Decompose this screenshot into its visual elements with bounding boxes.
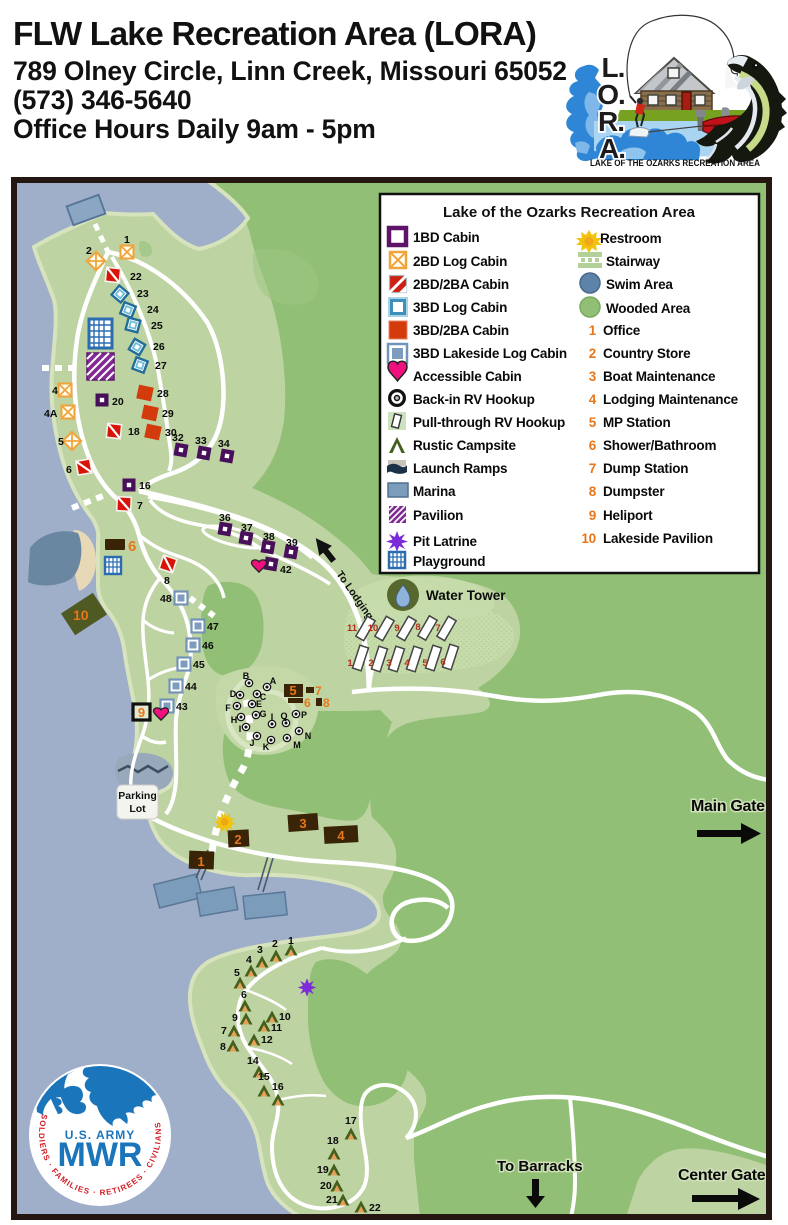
svg-text:8: 8 [220, 1041, 226, 1053]
svg-text:Pavilion: Pavilion [413, 508, 463, 523]
svg-text:2BD Log Cabin: 2BD Log Cabin [413, 254, 507, 269]
svg-text:Office: Office [603, 323, 641, 338]
svg-text:Pit Latrine: Pit Latrine [413, 534, 478, 549]
svg-text:19: 19 [317, 1164, 329, 1176]
svg-text:18: 18 [128, 426, 140, 438]
svg-text:7: 7 [435, 623, 440, 634]
svg-text:3BD Lakeside Log Cabin: 3BD Lakeside Log Cabin [413, 346, 567, 361]
svg-text:Lake of the Ozarks Recreation: Lake of the Ozarks Recreation Area [443, 204, 696, 221]
svg-text:3BD Log Cabin: 3BD Log Cabin [413, 300, 507, 315]
svg-text:1: 1 [197, 854, 204, 869]
svg-text:6: 6 [304, 696, 311, 710]
svg-text:I: I [271, 712, 274, 722]
svg-text:N: N [305, 731, 312, 741]
svg-text:3: 3 [589, 369, 597, 384]
svg-text:6: 6 [589, 438, 597, 453]
svg-text:Rustic Campsite: Rustic Campsite [413, 438, 516, 453]
svg-text:28: 28 [157, 388, 169, 400]
svg-text:1BD Cabin: 1BD Cabin [413, 230, 479, 245]
svg-text:H: H [231, 715, 238, 725]
svg-text:45: 45 [193, 659, 205, 671]
svg-text:10: 10 [73, 607, 89, 623]
svg-text:E: E [256, 699, 262, 709]
svg-text:K: K [263, 742, 270, 752]
svg-text:7: 7 [137, 500, 143, 512]
svg-text:26: 26 [153, 341, 165, 353]
svg-text:3: 3 [257, 944, 263, 956]
svg-text:4A: 4A [44, 408, 58, 420]
svg-text:34: 34 [218, 438, 230, 450]
svg-text:F: F [225, 703, 231, 713]
svg-text:G: G [259, 709, 266, 719]
svg-text:6: 6 [440, 657, 445, 668]
svg-text:43: 43 [176, 701, 188, 713]
svg-text:Stairway: Stairway [606, 254, 661, 269]
svg-text:Water Tower: Water Tower [426, 588, 506, 603]
svg-text:12: 12 [261, 1034, 273, 1046]
svg-text:17: 17 [345, 1115, 357, 1127]
svg-text:Parking: Parking [118, 790, 157, 802]
svg-text:Pull-through RV Hookup: Pull-through RV Hookup [413, 415, 565, 430]
svg-text:To Barracks: To Barracks [497, 1158, 583, 1175]
svg-text:9: 9 [589, 508, 596, 523]
svg-text:Lakeside Pavilion: Lakeside Pavilion [603, 531, 713, 546]
svg-text:25: 25 [151, 320, 163, 332]
svg-text:Shower/Bathroom: Shower/Bathroom [603, 438, 716, 453]
svg-text:47: 47 [207, 621, 219, 633]
svg-text:29: 29 [162, 408, 174, 420]
svg-text:Boat Maintenance: Boat Maintenance [603, 369, 716, 384]
svg-text:9: 9 [394, 623, 399, 634]
svg-text:4: 4 [404, 658, 410, 669]
svg-text:36: 36 [219, 512, 231, 524]
svg-text:Accessible Cabin: Accessible Cabin [413, 369, 522, 384]
svg-text:9: 9 [138, 705, 145, 720]
svg-text:27: 27 [155, 360, 167, 372]
svg-text:Restroom: Restroom [600, 231, 662, 246]
svg-text:6: 6 [128, 538, 136, 555]
svg-text:Main Gate: Main Gate [691, 798, 765, 815]
svg-text:A: A [270, 676, 277, 686]
svg-text:Lot: Lot [129, 803, 146, 815]
svg-text:9: 9 [232, 1012, 238, 1024]
svg-text:3: 3 [386, 658, 391, 669]
svg-text:Playground: Playground [413, 554, 485, 569]
svg-text:Q: Q [280, 711, 287, 721]
svg-text:33: 33 [195, 435, 207, 447]
svg-text:4: 4 [246, 954, 252, 966]
svg-text:2: 2 [368, 658, 373, 669]
svg-text:16: 16 [139, 480, 151, 492]
svg-text:3BD/2BA Cabin: 3BD/2BA Cabin [413, 323, 509, 338]
svg-text:Heliport: Heliport [603, 508, 653, 523]
svg-text:20: 20 [112, 396, 124, 408]
svg-text:6: 6 [241, 989, 247, 1001]
svg-text:6: 6 [66, 464, 72, 476]
svg-text:J: J [249, 738, 254, 748]
svg-text:2: 2 [234, 832, 241, 847]
svg-text:24: 24 [147, 304, 159, 316]
svg-text:38: 38 [263, 531, 275, 543]
svg-text:32: 32 [172, 432, 184, 444]
svg-text:1: 1 [347, 658, 353, 669]
svg-text:5: 5 [234, 967, 240, 979]
svg-text:22: 22 [369, 1202, 381, 1214]
svg-text:48: 48 [160, 593, 172, 605]
svg-text:7: 7 [589, 461, 596, 476]
svg-text:5: 5 [589, 415, 597, 430]
svg-text:15: 15 [258, 1071, 270, 1083]
svg-text:2: 2 [272, 938, 278, 950]
svg-text:4: 4 [337, 828, 345, 843]
svg-text:22: 22 [130, 271, 142, 283]
svg-text:39: 39 [286, 537, 298, 549]
svg-text:Launch Ramps: Launch Ramps [413, 461, 507, 476]
svg-text:I: I [239, 724, 242, 734]
svg-text:Lodging Maintenance: Lodging Maintenance [603, 392, 739, 407]
svg-text:16: 16 [272, 1081, 284, 1093]
svg-text:3: 3 [299, 816, 306, 831]
svg-text:Dumpster: Dumpster [603, 484, 665, 499]
svg-text:11: 11 [271, 1022, 282, 1034]
svg-text:Center Gate: Center Gate [678, 1167, 766, 1184]
svg-text:1: 1 [124, 234, 130, 246]
svg-text:Wooded Area: Wooded Area [606, 301, 691, 316]
svg-text:4: 4 [52, 385, 58, 397]
svg-text:Dump Station: Dump Station [603, 461, 688, 476]
svg-text:M: M [293, 740, 301, 750]
svg-text:Swim Area: Swim Area [606, 277, 673, 292]
svg-text:Marina: Marina [413, 484, 456, 499]
svg-text:42: 42 [280, 564, 292, 576]
svg-text:MWR: MWR [58, 1136, 143, 1174]
svg-text:2: 2 [86, 245, 92, 257]
svg-text:5: 5 [289, 683, 296, 698]
svg-text:2BD/2BA Cabin: 2BD/2BA Cabin [413, 277, 509, 292]
svg-text:37: 37 [241, 522, 253, 534]
svg-text:1: 1 [288, 935, 294, 947]
svg-text:11: 11 [347, 623, 358, 634]
svg-text:14: 14 [247, 1055, 259, 1067]
svg-text:10: 10 [368, 623, 379, 634]
svg-text:21: 21 [326, 1194, 338, 1206]
svg-text:18: 18 [327, 1135, 339, 1147]
svg-text:7: 7 [221, 1025, 227, 1037]
svg-text:5: 5 [422, 658, 428, 669]
svg-text:7: 7 [315, 684, 322, 698]
svg-text:4: 4 [589, 392, 597, 407]
svg-text:1: 1 [589, 323, 597, 338]
svg-text:8: 8 [164, 575, 170, 587]
svg-text:Country Store: Country Store [603, 346, 691, 361]
svg-text:MP Station: MP Station [603, 415, 671, 430]
svg-text:2: 2 [589, 346, 596, 361]
svg-text:44: 44 [185, 681, 197, 693]
svg-text:Back-in RV Hookup: Back-in RV Hookup [413, 392, 535, 407]
svg-text:23: 23 [137, 288, 149, 300]
svg-text:8: 8 [323, 696, 330, 710]
svg-text:P: P [301, 710, 307, 720]
svg-text:8: 8 [415, 622, 420, 633]
svg-text:10: 10 [581, 531, 596, 546]
svg-text:8: 8 [589, 484, 597, 499]
svg-text:46: 46 [202, 640, 214, 652]
svg-text:20: 20 [320, 1180, 332, 1192]
svg-text:5: 5 [58, 436, 64, 448]
svg-text:D: D [230, 689, 237, 699]
svg-text:B: B [243, 671, 250, 681]
